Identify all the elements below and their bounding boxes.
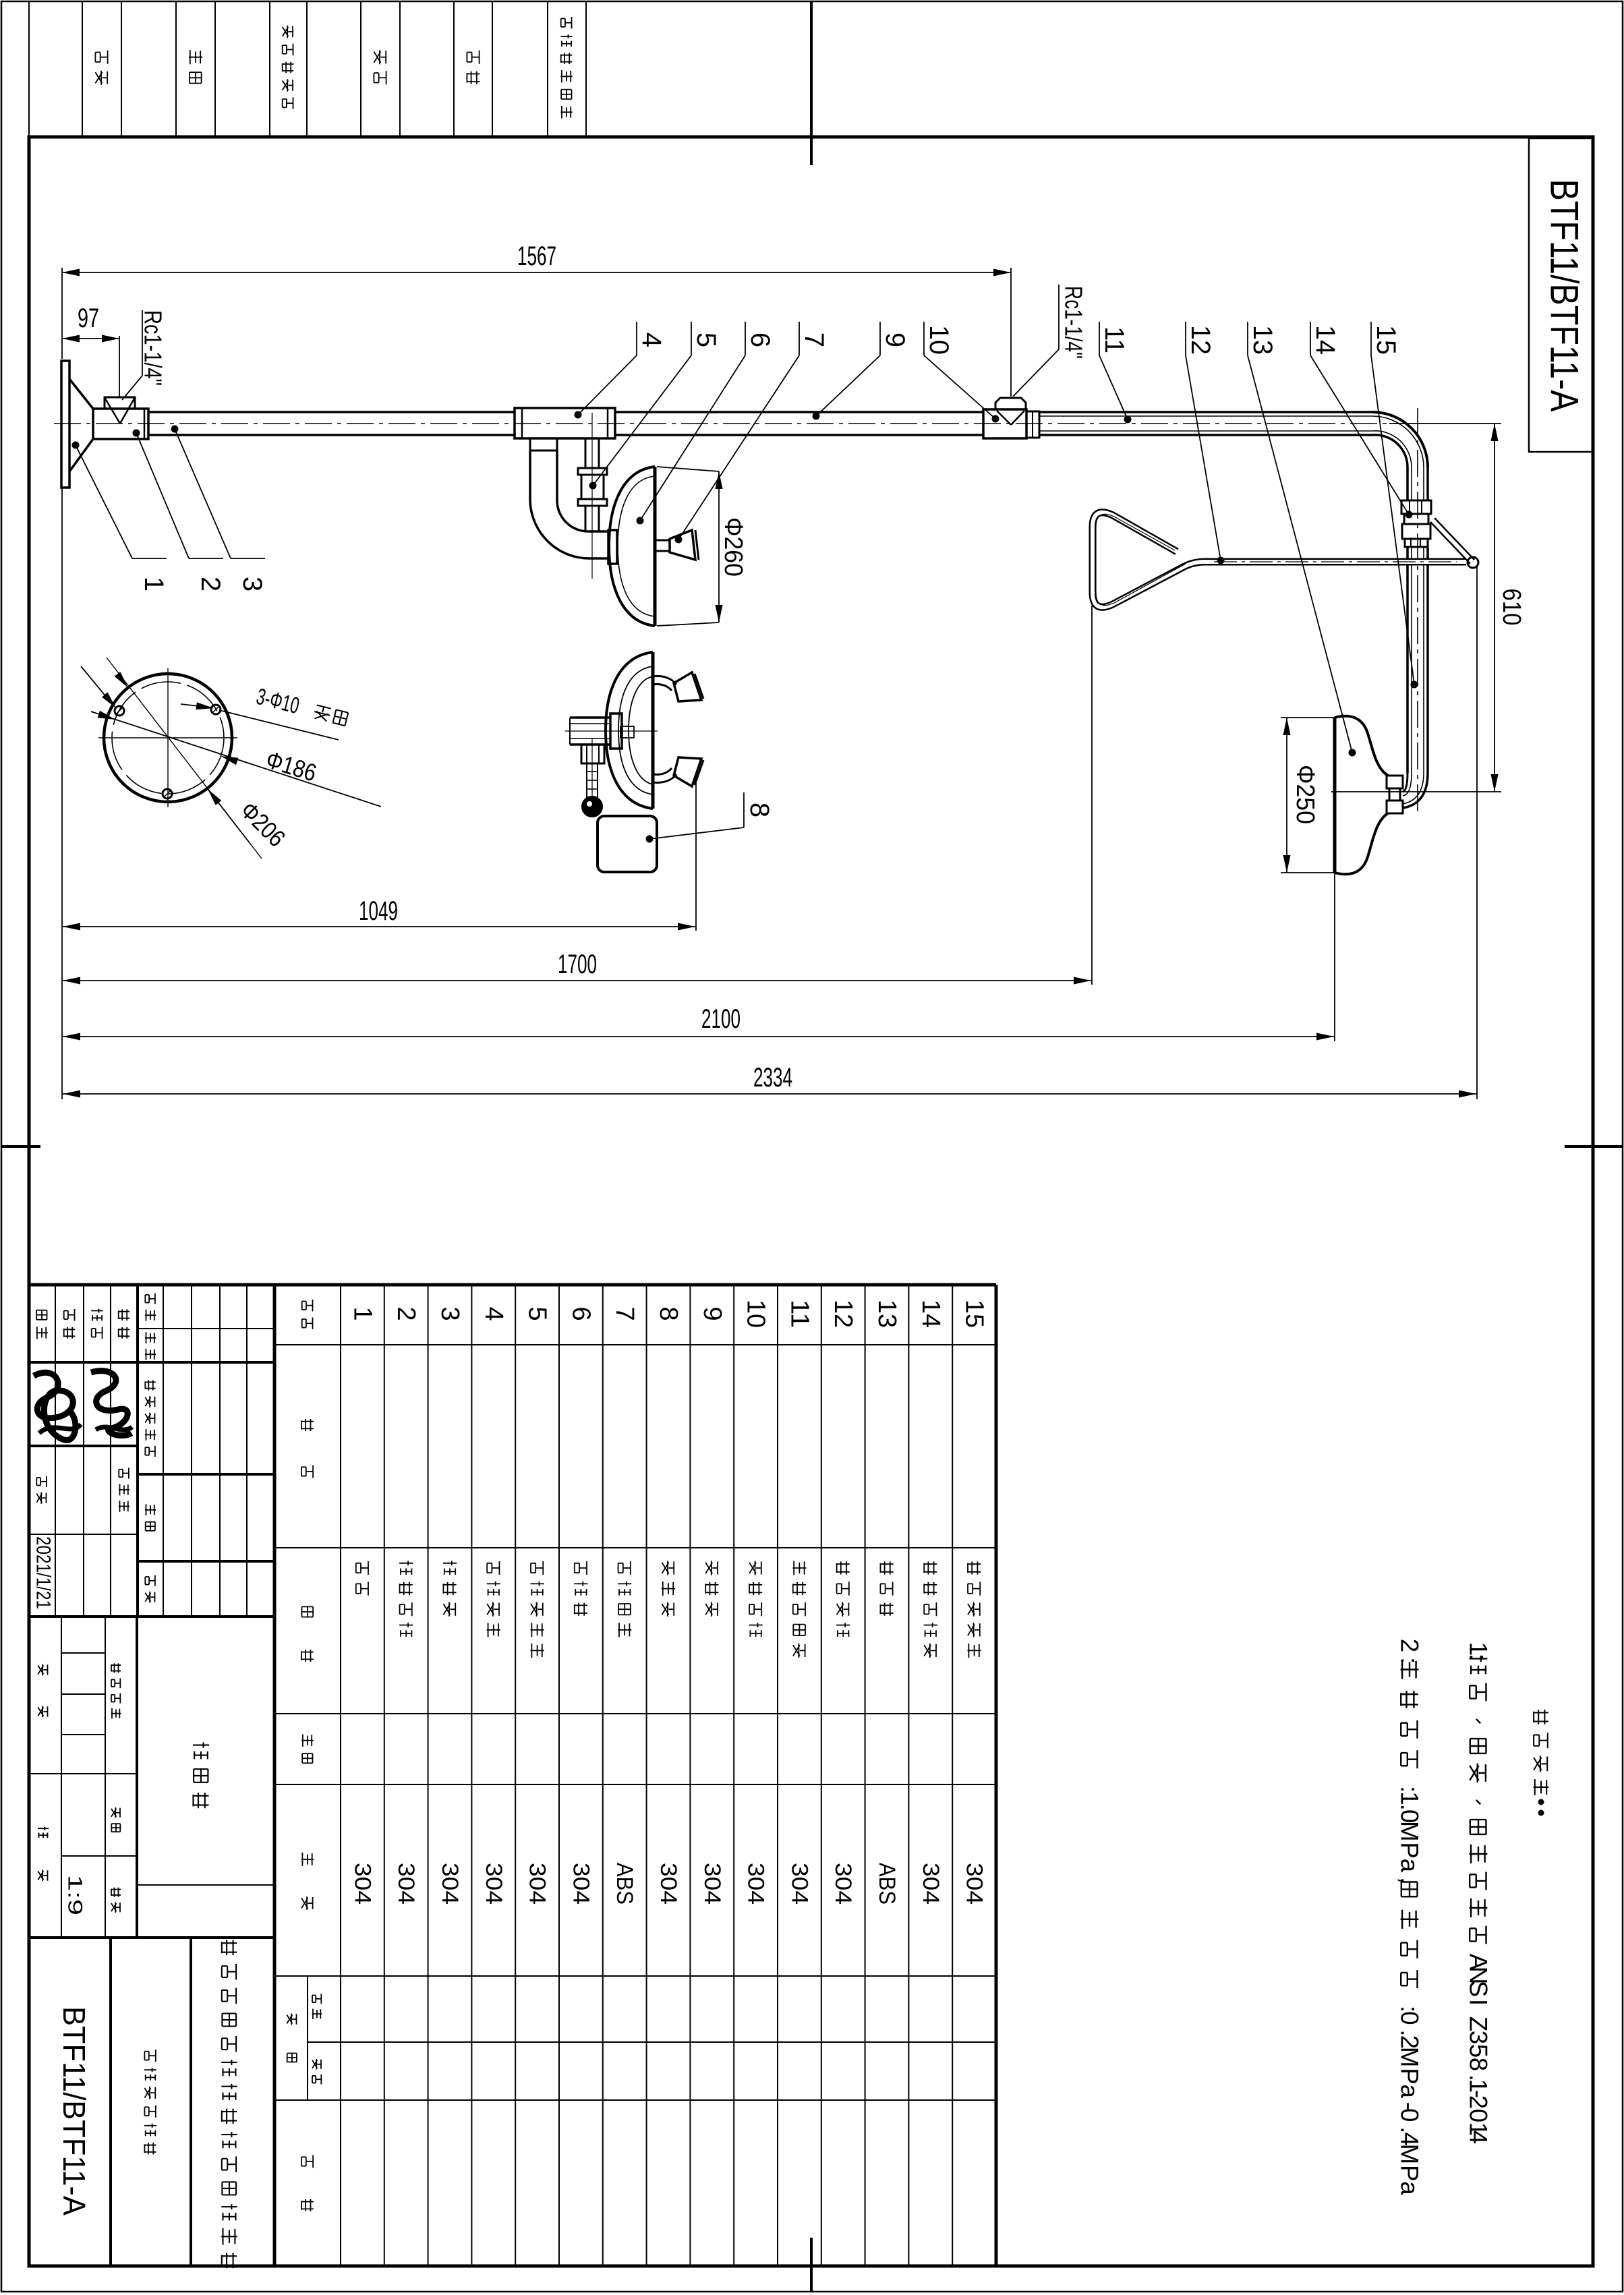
svg-text:1567: 1567 [517, 241, 556, 271]
svg-text:13: 13 [873, 1300, 901, 1328]
svg-text:3: 3 [436, 1306, 464, 1320]
svg-text:304: 304 [349, 1863, 375, 1905]
svg-text:304: 304 [830, 1863, 856, 1905]
svg-text:97: 97 [78, 303, 99, 333]
svg-text:ABS: ABS [874, 1863, 900, 1905]
svg-text:2: 2 [196, 577, 225, 591]
svg-text:304: 304 [786, 1863, 812, 1905]
svg-text:2021/1/21: 2021/1/21 [32, 1536, 55, 1609]
svg-text:14: 14 [917, 1300, 945, 1328]
svg-text:304: 304 [656, 1863, 681, 1905]
svg-text:5: 5 [691, 332, 721, 347]
svg-text:1: 1 [139, 577, 169, 591]
svg-text:13: 13 [1248, 325, 1277, 355]
svg-text:1049: 1049 [359, 896, 398, 926]
svg-text:a: a [1396, 2181, 1424, 2195]
svg-text:1700: 1700 [558, 950, 597, 979]
svg-text:4: 4 [480, 1306, 508, 1320]
svg-text:a: a [1396, 2084, 1424, 2098]
svg-text:3: 3 [1465, 2031, 1492, 2044]
svg-text:I: I [1465, 1999, 1492, 2006]
svg-text:8: 8 [654, 1306, 683, 1320]
svg-text:P: P [1396, 2165, 1424, 2182]
svg-text:15: 15 [1371, 325, 1401, 355]
svg-text:BTF11/BTF11-A: BTF11/BTF11-A [1542, 179, 1586, 412]
svg-text:2334: 2334 [753, 1063, 792, 1093]
svg-text:Φ260: Φ260 [719, 517, 747, 577]
svg-text:12: 12 [1186, 325, 1215, 355]
svg-text:5: 5 [1465, 2044, 1492, 2058]
svg-text:ABS: ABS [612, 1863, 637, 1905]
svg-text:7: 7 [799, 332, 829, 347]
svg-text:Z: Z [1465, 2016, 1492, 2031]
svg-text:4: 4 [637, 332, 666, 347]
svg-text:12: 12 [829, 1300, 857, 1328]
svg-text:304: 304 [437, 1863, 463, 1905]
svg-text:11: 11 [1099, 326, 1129, 353]
svg-text:304: 304 [481, 1863, 506, 1905]
svg-text:5: 5 [523, 1306, 552, 1320]
svg-text:1: 1 [348, 1306, 376, 1320]
svg-text:0: 0 [1396, 2108, 1424, 2122]
svg-text:15: 15 [960, 1300, 989, 1328]
svg-text:Rc1-1/4": Rc1-1/4" [140, 310, 167, 386]
svg-text:BTF11/BTF11-A: BTF11/BTF11-A [57, 2006, 92, 2215]
svg-text:1: 1 [1396, 1791, 1424, 1805]
svg-text:S: S [1465, 1981, 1492, 1998]
svg-text:7: 7 [610, 1306, 639, 1320]
svg-text:304: 304 [393, 1863, 419, 1905]
svg-text:304: 304 [525, 1863, 550, 1905]
svg-text:2: 2 [1396, 1639, 1424, 1652]
svg-text:6: 6 [567, 1306, 595, 1320]
svg-text:2100: 2100 [701, 1004, 741, 1034]
svg-text:8: 8 [745, 803, 774, 817]
svg-text:9: 9 [880, 332, 910, 347]
svg-text:304: 304 [568, 1863, 593, 1905]
svg-text:304: 304 [918, 1863, 944, 1905]
svg-text:M: M [1396, 2144, 1424, 2165]
svg-text:P: P [1396, 2068, 1424, 2085]
svg-text:14: 14 [1310, 325, 1340, 355]
svg-text:8: 8 [1465, 2058, 1492, 2071]
svg-text:1:9: 1:9 [64, 1875, 86, 1915]
svg-text:0: 0 [1396, 2011, 1424, 2025]
svg-text:3: 3 [237, 577, 267, 591]
svg-text:0: 0 [1465, 2109, 1492, 2122]
svg-text:M: M [1396, 1821, 1424, 1842]
svg-text:M: M [1396, 2047, 1424, 2068]
svg-text:4: 4 [1465, 2130, 1492, 2144]
svg-text:10: 10 [742, 1300, 770, 1328]
svg-text:a: a [1396, 1859, 1424, 1873]
svg-text:11: 11 [785, 1300, 813, 1328]
svg-text:Rc1-1/4": Rc1-1/4" [1060, 286, 1088, 359]
svg-text:P: P [1396, 1842, 1424, 1859]
svg-text:6: 6 [745, 332, 775, 347]
svg-text:304: 304 [699, 1863, 725, 1905]
svg-text:304: 304 [962, 1863, 987, 1905]
svg-text:9: 9 [698, 1306, 726, 1320]
svg-text:304: 304 [743, 1863, 769, 1905]
svg-text:10: 10 [924, 325, 954, 355]
svg-text:2: 2 [1465, 2095, 1492, 2109]
svg-text:2: 2 [392, 1306, 420, 1320]
svg-text:610: 610 [1497, 589, 1526, 626]
svg-text:Φ250: Φ250 [1291, 765, 1319, 824]
